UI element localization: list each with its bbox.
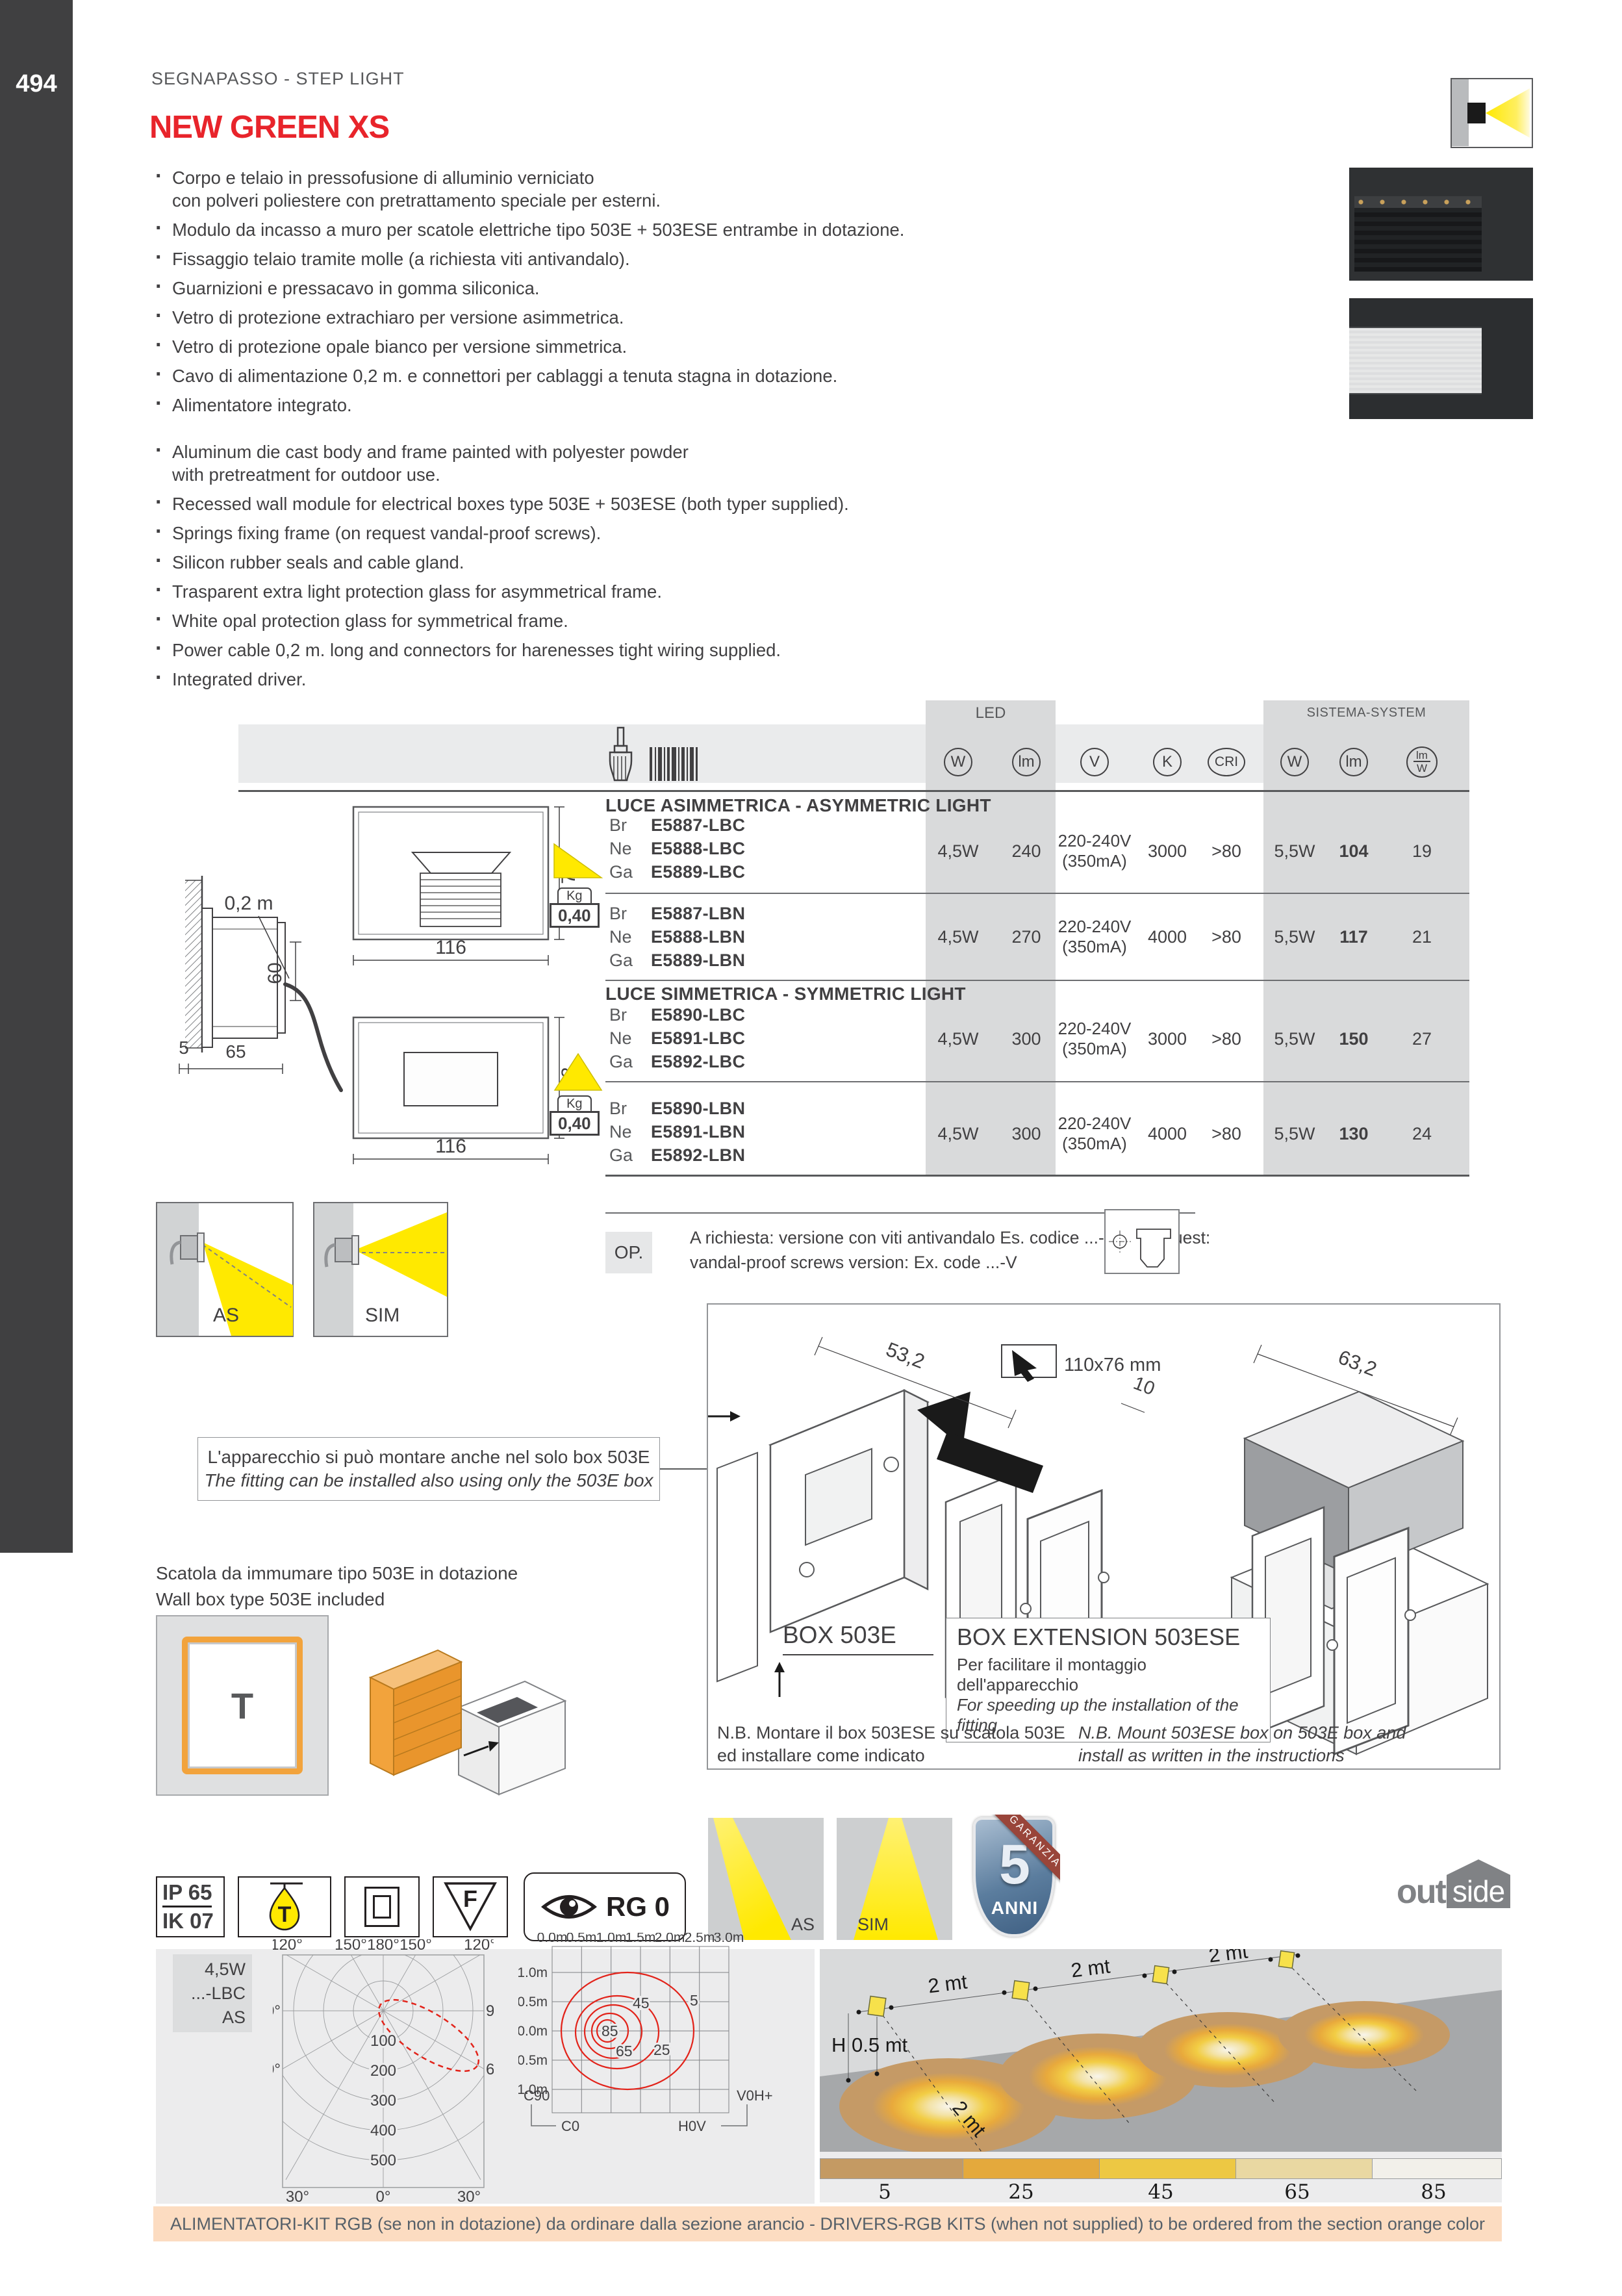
product-photo-asymmetric [1349,168,1533,281]
cri-icon: CRI [1208,748,1245,776]
feature-item: Corpo e telaio in pressofusione di allum… [151,166,1035,212]
svg-text:AS: AS [213,1305,239,1326]
svg-text:0°: 0° [376,2188,391,2206]
svg-text:63,2: 63,2 [1335,1346,1380,1381]
t-mark: T [231,1685,253,1727]
f-mark-badge: F [433,1876,508,1937]
svg-text:53,2: 53,2 [883,1338,928,1373]
value-cri: >80 [1187,806,1265,897]
svg-text:85: 85 [602,2022,618,2039]
svg-text:500: 500 [370,2152,396,2169]
spacing-scene: 2 mt 2 mt 2 mt H 0.5 mt 2 mt [820,1949,1502,2152]
svg-text:65: 65 [225,1041,246,1062]
svg-text:0.5m: 0.5m [518,1995,548,2009]
svg-text:3.0m: 3.0m [714,1933,744,1945]
as-beam-diagram: AS [156,1202,294,1337]
rg0-photobiological-badge: RG 0 [524,1872,686,1941]
svg-text:C0: C0 [561,2118,579,2134]
feature-item: Modulo da incasso a muro per scatole ele… [151,218,1035,241]
asymmetric-beam-icon [552,842,604,880]
row-divider [605,1081,1469,1082]
lux-scale-label: 25 [1002,2180,1041,2204]
svg-text:T: T [278,1902,292,1927]
feature-item: Fissaggio telaio tramite molle (a richie… [151,248,1035,270]
svg-text:-0.5m: -0.5m [518,2053,548,2068]
watt-led-icon: W [944,748,972,776]
lumen-led-icon: lm [1012,748,1041,776]
svg-text:90°: 90° [486,2002,494,2020]
svg-text:F: F [463,1885,477,1912]
breadcrumb: SEGNAPASSO - STEP LIGHT [151,69,405,89]
feature-item: Integrated driver. [151,668,1035,691]
lumen-system-icon: lm [1339,748,1368,776]
feature-item: Alimentatore integrato. [151,394,1035,416]
box503e-label: BOX 503E [783,1622,896,1649]
row-divider [605,893,1469,894]
feature-item: Silicon rubber seals and cable gland. [151,551,1035,574]
svg-text:2.5m: 2.5m [685,1933,715,1945]
feature-item: Recessed wall module for electrical boxe… [151,492,1035,515]
features-it: Corpo e telaio in pressofusione di allum… [151,166,1035,423]
table-row-codes: BrE5887-LBC NeE5888-LBC GaE5889-LBC [609,813,745,884]
value-lmw: 19 [1383,806,1461,897]
svg-text:60°: 60° [486,2061,494,2078]
lux-scale-bar [820,2158,1502,2179]
svg-text:150°: 150° [399,1939,432,1954]
svg-text:30°: 30° [286,2188,309,2206]
vandal-screw-drawing [1103,1205,1181,1277]
svg-text:5: 5 [690,1992,698,2009]
volt-icon: V [1080,748,1109,776]
paintbrush-icon [604,726,637,785]
svg-text:25: 25 [653,2041,670,2058]
symmetric-beam-icon [552,1051,604,1093]
feature-item: White opal protection glass for symmetri… [151,609,1035,632]
lux-scale-label: 45 [1141,2180,1180,2204]
svg-text:2.0m: 2.0m [655,1933,685,1945]
only-503e-note: L'apparecchio si può montare anche nel s… [197,1437,660,1501]
svg-text:45: 45 [633,1995,650,2011]
svg-text:2 mt: 2 mt [1070,1954,1111,1982]
isolux-diagram: 0.0m 0.5m 1.0m 1.5m 2.0m 2.5m 3.0m 1.0m … [518,1933,798,2147]
section-title-symmetric: LUCE SIMMETRICA - SYMMETRIC LIGHT [605,984,966,1004]
svg-text:65: 65 [616,2043,633,2060]
svg-text:1.5m: 1.5m [626,1933,656,1945]
table-row-codes: BrE5890-LBN NeE5891-LBN GaE5892-LBN [609,1097,745,1167]
polar-diagram: 120° 150° 180° 150° 120° 90° 90° 60° 60°… [273,1939,494,2225]
svg-text:SIM: SIM [365,1305,399,1326]
weight-icon: Kg 0,40 [550,1095,600,1136]
catalog-page: 494 SEGNAPASSO - STEP LIGHT NEW GREEN XS… [0,0,1622,2296]
product-photo-symmetric [1349,298,1533,419]
feature-item: Cavo di alimentazione 0,2 m. e connettor… [151,364,1035,387]
svg-text:H0V: H0V [678,2118,706,2134]
table-bottom-border [605,1175,1469,1177]
outside-logo: out side [1397,1859,1510,1908]
value-volt: 220-240V(350mA) [1049,806,1140,897]
rgb-drivers-notice: ALIMENTATORI-KIT RGB (se non in dotazion… [153,2206,1502,2241]
table-row-codes: BrE5887-LBN NeE5888-LBN GaE5889-LBN [609,902,745,972]
svg-text:100: 100 [370,2032,396,2050]
features-en: Aluminum die cast body and frame painted… [151,440,1035,697]
led-group-header: LED [926,704,1056,722]
wallbox-photo: T [156,1615,329,1796]
glass-temperature-badge: T [238,1876,331,1937]
svg-text:116: 116 [435,1136,466,1157]
svg-text:V0H+: V0H+ [737,2087,773,2104]
svg-text:30°: 30° [457,2188,481,2206]
as-beam-card: AS [708,1818,824,1940]
table-row-codes: BrE5890-LBC NeE5891-LBC GaE5892-LBC [609,1003,745,1073]
svg-text:0,2 m: 0,2 m [224,893,273,914]
barcode-icon [650,747,699,781]
svg-text:300: 300 [370,2092,396,2110]
feature-item: Vetro di protezione extrachiaro per vers… [151,306,1035,329]
feature-item: Trasparent extra light protection glass … [151,580,1035,603]
svg-text:0.5m: 0.5m [566,1933,597,1945]
svg-text:150°: 150° [335,1939,367,1954]
svg-text:180°: 180° [367,1939,399,1954]
lux-scale-label: 65 [1278,2180,1317,2204]
ip-ik-badge: IP 65 IK 07 [156,1876,225,1937]
watt-system-icon: W [1280,748,1309,776]
svg-text:1.0m: 1.0m [518,1965,548,1980]
warranty-shield: 5 ANNI GARANZIA [969,1815,1060,1942]
polar-chart-key: 4,5W ...-LBC AS [173,1954,252,2032]
svg-text:110x76 mm: 110x76 mm [1064,1355,1161,1375]
class-ii-badge [344,1876,420,1937]
wall-beam-icon [1451,78,1533,148]
svg-text:5: 5 [179,1038,189,1058]
svg-text:120°: 120° [273,1939,303,1954]
feature-item: Aluminum die cast body and frame painted… [151,440,1035,486]
svg-text:1.0m: 1.0m [596,1933,627,1945]
lux-scale-label: 5 [865,2180,904,2204]
nb-note-en: N.B. Mount 503ESE box on 503E box andins… [1078,1722,1406,1767]
svg-text:90°: 90° [273,2002,281,2020]
sim-beam-diagram: SIM [313,1202,448,1337]
svg-text:0.0m: 0.0m [537,1933,568,1945]
svg-text:H 0.5 mt: H 0.5 mt [831,2034,908,2056]
svg-text:C90: C90 [524,2087,550,2104]
kelvin-icon: K [1153,748,1182,776]
svg-text:60: 60 [264,962,286,984]
page-title: NEW GREEN XS [149,109,389,146]
svg-text:400: 400 [370,2122,396,2139]
svg-text:60°: 60° [273,2061,281,2078]
page-number: 494 [0,70,73,98]
weight-icon: Kg 0,40 [550,887,600,928]
table-header-divider [238,790,1469,792]
svg-text:10: 10 [1130,1373,1158,1399]
svg-text:120°: 120° [464,1939,494,1954]
sim-beam-card: SIM [837,1818,952,1940]
wallbox-isometric-drawing [361,1605,569,1800]
svg-text:0.0m: 0.0m [518,2024,548,2039]
value-sys-lm: 104 [1315,806,1393,897]
value-led-w: 4,5W [919,806,997,897]
svg-text:200: 200 [370,2062,396,2080]
feature-item: Guarnizioni e pressacavo in gomma silico… [151,277,1035,300]
feature-item: Springs fixing frame (on request vandal-… [151,522,1035,544]
sidebar-band [0,0,73,1553]
op-chip: OP. [605,1232,652,1273]
lux-scale-label: 85 [1414,2180,1453,2204]
feature-item: Power cable 0,2 m. long and connectors f… [151,639,1035,661]
svg-text:116: 116 [435,937,466,958]
row-divider [605,980,1469,981]
feature-item: Vetro di protezione opale bianco per ver… [151,335,1035,358]
svg-text:2 mt: 2 mt [927,1970,969,1997]
nb-note-it: N.B. Montare il box 503ESE su scatola 50… [717,1722,1065,1767]
lumen-per-watt-icon: lm W [1406,746,1438,778]
system-group-header: SISTEMA-SYSTEM [1263,706,1469,721]
